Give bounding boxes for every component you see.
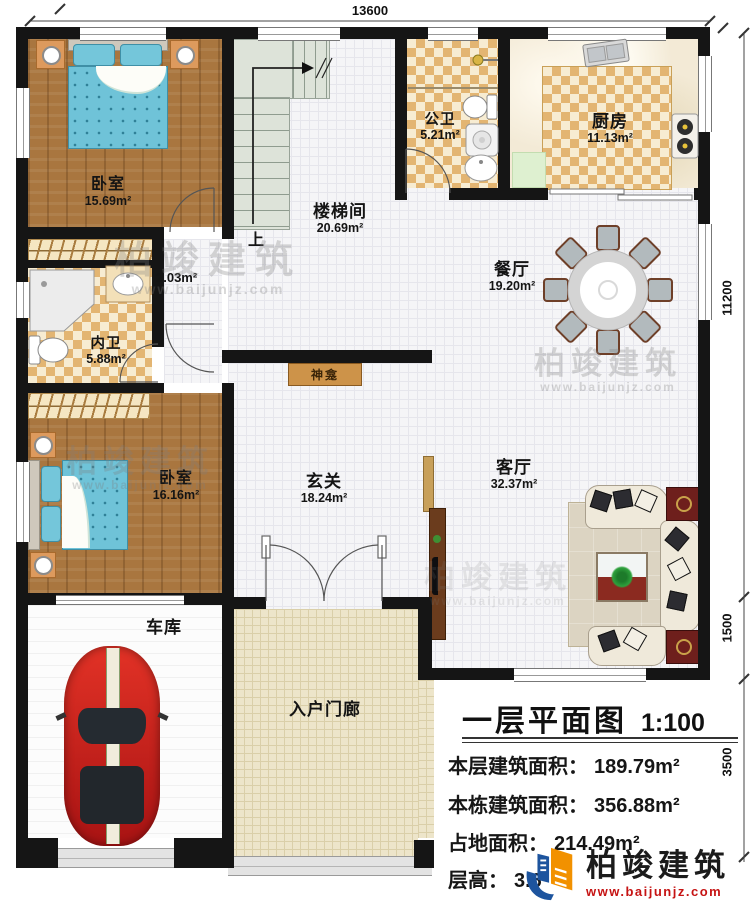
room-label-dining: 餐厅 19.20m² bbox=[489, 260, 536, 293]
dimension-right-main: 11200 bbox=[720, 280, 735, 315]
bath-public-door bbox=[406, 149, 450, 193]
kitchen-sliding-door bbox=[550, 189, 692, 200]
plan-title-row: 一层平面图 1:100 bbox=[462, 696, 705, 740]
room-label-bedroom1: 卧室 15.69m² bbox=[85, 176, 132, 208]
watermark: 柏竣建筑 www.baijunjz.com bbox=[66, 446, 214, 491]
room-label-garage: 车库 bbox=[146, 618, 182, 637]
watermark: 柏竣建筑 www.baijunjz.com bbox=[424, 562, 572, 607]
bedroom2-door bbox=[166, 324, 214, 372]
kitchen-sink bbox=[583, 39, 630, 67]
room-label-porch: 入户门廊 bbox=[289, 700, 361, 719]
dimension-top: 13600 bbox=[352, 3, 388, 18]
room-label-living: 客厅 32.37m² bbox=[491, 458, 538, 491]
dining-set bbox=[544, 226, 672, 354]
plan-title: 一层平面图 bbox=[462, 696, 627, 740]
room-label-stairwell: 楼梯间 20.69m² bbox=[313, 202, 367, 235]
room-label-bath-private: 内卫 5.88m² bbox=[86, 336, 126, 366]
room-label-kitchen: 厨房 11.13m² bbox=[587, 112, 633, 145]
room-label-bath-public: 公卫 5.21m² bbox=[420, 112, 460, 142]
dimension-right-living: 1500 bbox=[720, 614, 735, 643]
plan-scale: 1:100 bbox=[641, 709, 705, 738]
towel-ring-icon bbox=[473, 55, 498, 65]
brand-logo-icon bbox=[522, 843, 580, 905]
room-label-foyer: 玄关 18.24m² bbox=[301, 472, 348, 505]
sink-public bbox=[465, 155, 497, 181]
stair-up-arrow bbox=[253, 58, 332, 224]
toilet-public bbox=[463, 95, 497, 119]
entry-double-door bbox=[262, 536, 386, 601]
toilet-private bbox=[29, 336, 68, 364]
watermark: 柏竣建筑 www.baijunjz.com bbox=[114, 242, 302, 297]
washing-machine bbox=[466, 124, 498, 156]
bedroom1-door bbox=[170, 188, 214, 232]
stat-floor-area: 本层建筑面积：189.79m² bbox=[448, 750, 680, 779]
dimension-right-lower: 3500 bbox=[720, 748, 735, 777]
brand-logo-text: 柏竣建筑 www.baijunjz.com bbox=[586, 850, 730, 899]
stove bbox=[672, 114, 698, 158]
watermark: 柏竣建筑 www.baijunjz.com bbox=[534, 348, 682, 393]
stat-building-area: 本栋建筑面积：356.88m² bbox=[448, 789, 680, 818]
shower bbox=[30, 270, 94, 331]
brand-logo: 柏竣建筑 www.baijunjz.com bbox=[522, 843, 730, 905]
title-underline bbox=[462, 737, 738, 743]
floor-plan-canvas: 神龛 bbox=[0, 0, 750, 913]
